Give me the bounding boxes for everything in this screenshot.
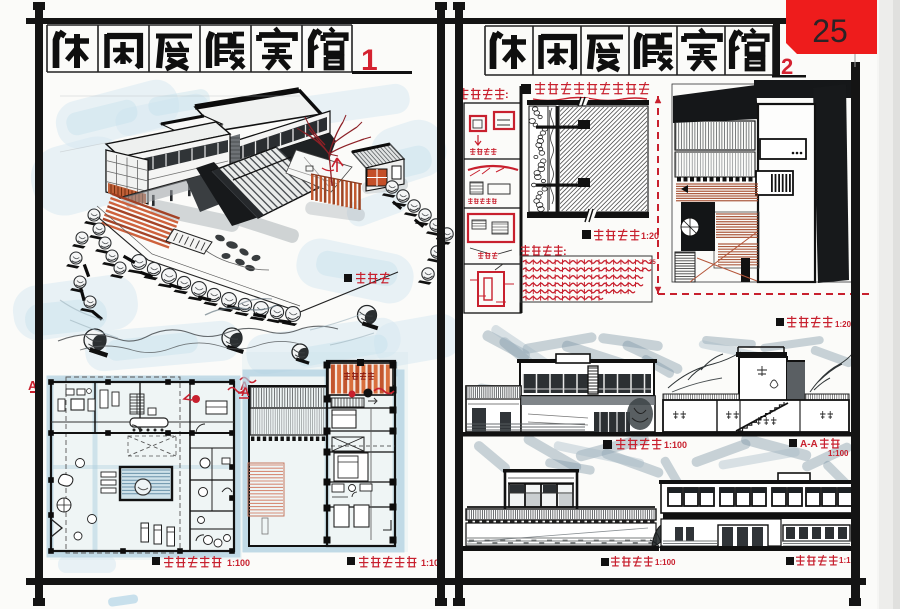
svg-text:1:100: 1:100: [664, 440, 687, 450]
svg-text:1:20: 1:20: [641, 231, 659, 241]
svg-text:35: 35: [649, 260, 656, 266]
svg-text:25: 25: [812, 13, 848, 49]
svg-text::: :: [505, 89, 509, 101]
svg-text:1:100: 1:100: [655, 558, 676, 567]
svg-text:1:100: 1:100: [227, 558, 250, 568]
svg-text:A-A: A-A: [800, 439, 818, 450]
svg-text:1:100: 1:100: [828, 449, 849, 458]
